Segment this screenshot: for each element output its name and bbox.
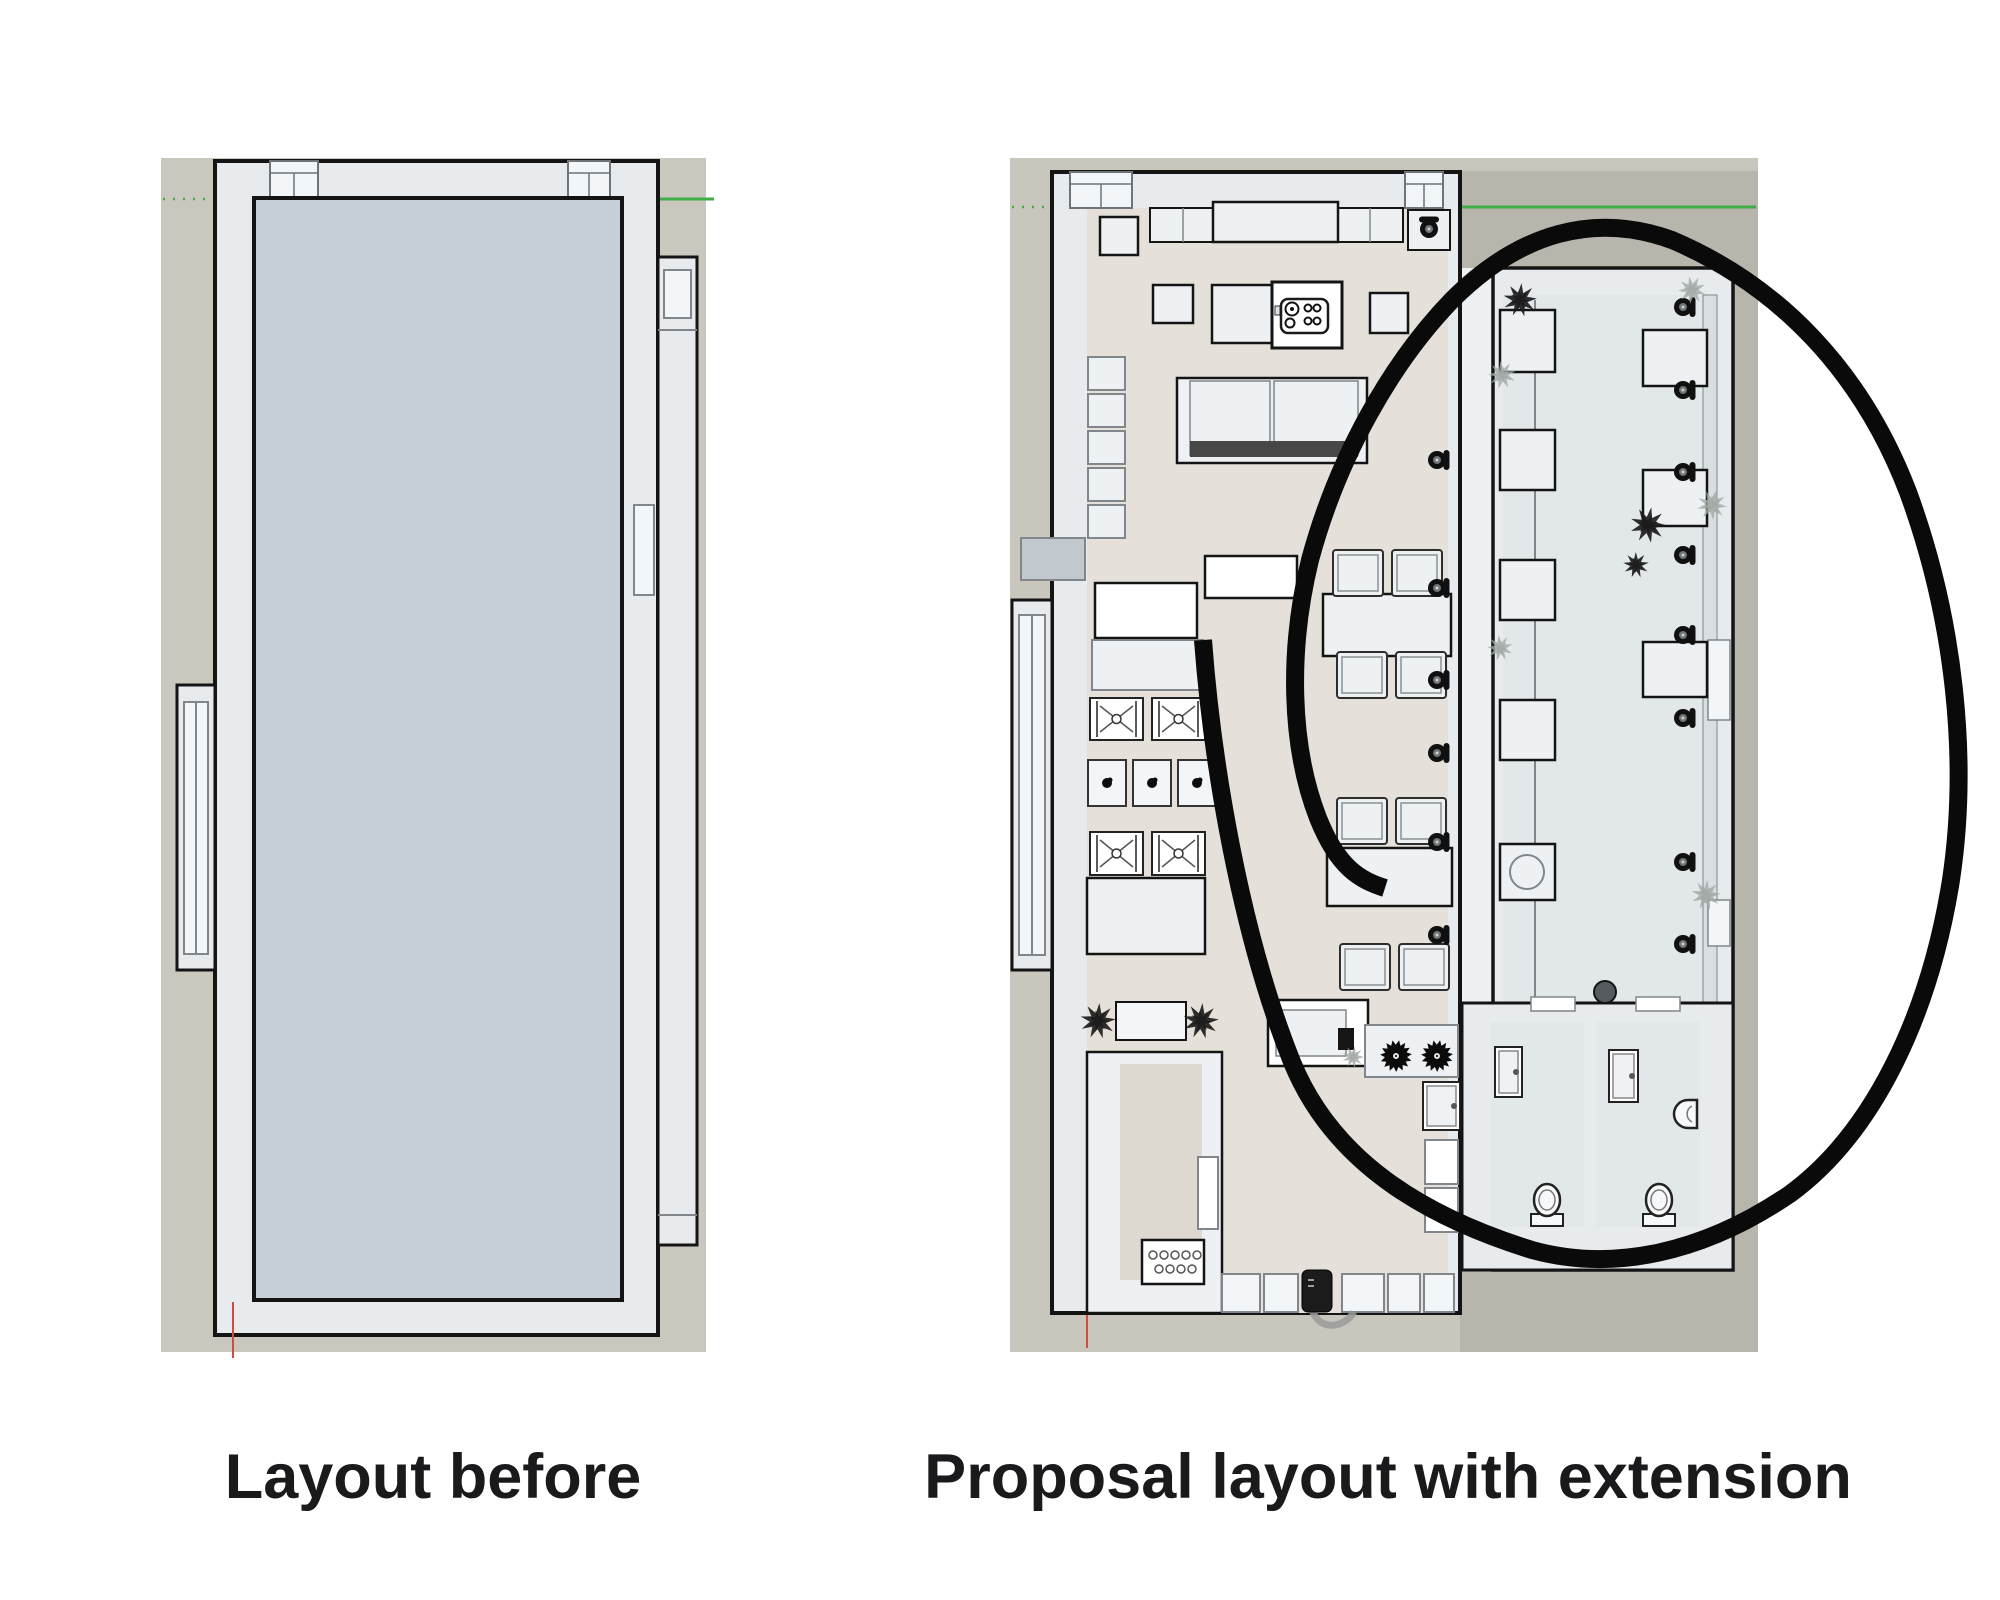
urinal xyxy=(1674,1100,1697,1128)
cafe-table xyxy=(1500,700,1555,760)
dining-chair xyxy=(1340,944,1390,990)
wall-cabinet xyxy=(1088,357,1125,390)
cafe-table xyxy=(1643,470,1707,526)
cafe-table xyxy=(1643,642,1707,697)
ledge-window xyxy=(1708,900,1730,946)
cafe-stool-dot xyxy=(1682,389,1685,392)
floor-plan-comparison xyxy=(0,0,2000,1600)
cafe-stool-dot xyxy=(1682,554,1685,557)
bottom-window xyxy=(1424,1274,1454,1312)
cooktop-burner xyxy=(1286,319,1295,328)
prep-square-3 xyxy=(1370,293,1408,333)
coffee-grinder-dot xyxy=(1436,1055,1438,1057)
toilet-bowl xyxy=(1534,1184,1560,1216)
side-cabinet xyxy=(1092,640,1203,690)
prep-table-hub xyxy=(1174,849,1183,858)
floor-drain-fixture xyxy=(1594,981,1616,1003)
dining-chair xyxy=(1337,652,1387,698)
kitchen-cabinet-corner xyxy=(1100,217,1138,255)
dining-chair xyxy=(1399,944,1449,990)
stall-door xyxy=(1636,997,1680,1011)
right-wall-window xyxy=(634,505,654,595)
prep-square-2 xyxy=(1212,285,1272,343)
sofa-shadow xyxy=(1190,441,1358,457)
bar-stool-dot xyxy=(1436,587,1439,590)
wall-cabinet xyxy=(1088,468,1125,501)
bar-stool-dot xyxy=(1436,459,1439,462)
dining-chair xyxy=(1333,550,1383,596)
cafe-table xyxy=(1500,310,1555,372)
bar-stool-dot xyxy=(1436,752,1439,755)
bar-stool-dot xyxy=(1436,841,1439,844)
cafe-table xyxy=(1643,330,1707,386)
bottom-window xyxy=(1342,1274,1384,1312)
cooktop-burner xyxy=(1305,305,1312,312)
cafe-stool-dot xyxy=(1682,471,1685,474)
caption-layout-before: Layout before xyxy=(225,1446,642,1509)
bathroom-sink-faucet xyxy=(1513,1069,1519,1075)
dish-rack xyxy=(1142,1240,1204,1284)
water-boiler xyxy=(1302,1270,1332,1312)
toilet-bowl xyxy=(1646,1184,1672,1216)
cooktop-burner xyxy=(1314,305,1321,312)
flat-roof xyxy=(254,198,622,1300)
caption-proposal-layout: Proposal layout with extension xyxy=(924,1446,1852,1509)
service-counter xyxy=(1205,556,1297,598)
cooker-unit-knob xyxy=(1153,778,1158,783)
cafe-stool-dot xyxy=(1682,306,1685,309)
stall-door xyxy=(1531,997,1575,1011)
dining-table-1 xyxy=(1323,594,1451,656)
plan-layout-before xyxy=(161,158,714,1358)
ledge-window xyxy=(1708,640,1730,720)
cooktop-burner-dot xyxy=(1290,307,1294,311)
cafe-stool-dot xyxy=(1682,943,1685,946)
annex-window xyxy=(664,270,691,318)
cooker-unit-knob xyxy=(1108,778,1113,783)
cafe-table xyxy=(1500,560,1555,620)
prep-square-1 xyxy=(1153,285,1193,323)
bar-stool-dot xyxy=(1428,228,1431,231)
hall-console xyxy=(1116,1002,1186,1040)
side-desk xyxy=(1095,583,1197,638)
figure-canvas: Layout before Proposal layout with exten… xyxy=(0,0,2000,1600)
bathroom-sink-faucet xyxy=(1629,1073,1635,1079)
under-counter-fridge xyxy=(1425,1140,1458,1184)
bottom-window xyxy=(1264,1274,1298,1312)
cafe-stool-dot xyxy=(1682,717,1685,720)
cafe-stool-dot xyxy=(1682,861,1685,864)
prep-table-hub xyxy=(1112,715,1121,724)
cafe-table xyxy=(1500,430,1555,490)
cafe-stool-dot xyxy=(1682,634,1685,637)
cooker-unit-knob xyxy=(1198,778,1203,783)
cooktop-burner xyxy=(1314,318,1321,325)
prep-table-hub xyxy=(1174,715,1183,724)
wall-cabinet xyxy=(1088,505,1125,538)
dining-chair xyxy=(1337,798,1387,844)
cooktop-burner xyxy=(1305,318,1312,325)
prep-table-large xyxy=(1087,878,1205,954)
espresso-machine xyxy=(1338,1028,1354,1050)
cooktop-handle xyxy=(1275,306,1280,315)
coffee-grinder-dot xyxy=(1395,1055,1397,1057)
wall-cabinet xyxy=(1088,394,1125,427)
connector-wall xyxy=(1460,268,1493,1005)
fireplace-block xyxy=(1021,538,1085,580)
bar-stool-dot xyxy=(1436,679,1439,682)
prep-table-hub xyxy=(1112,849,1121,858)
utility-door xyxy=(1198,1157,1218,1229)
bottom-window xyxy=(1388,1274,1420,1312)
bar-stool-dot xyxy=(1436,934,1439,937)
wall-cabinet xyxy=(1088,431,1125,464)
side-annex xyxy=(658,257,697,1245)
bar-sink-faucet xyxy=(1451,1103,1457,1109)
kitchen-counter-raised xyxy=(1213,202,1338,242)
bottom-window xyxy=(1222,1274,1260,1312)
cafe-table-round xyxy=(1500,844,1555,900)
